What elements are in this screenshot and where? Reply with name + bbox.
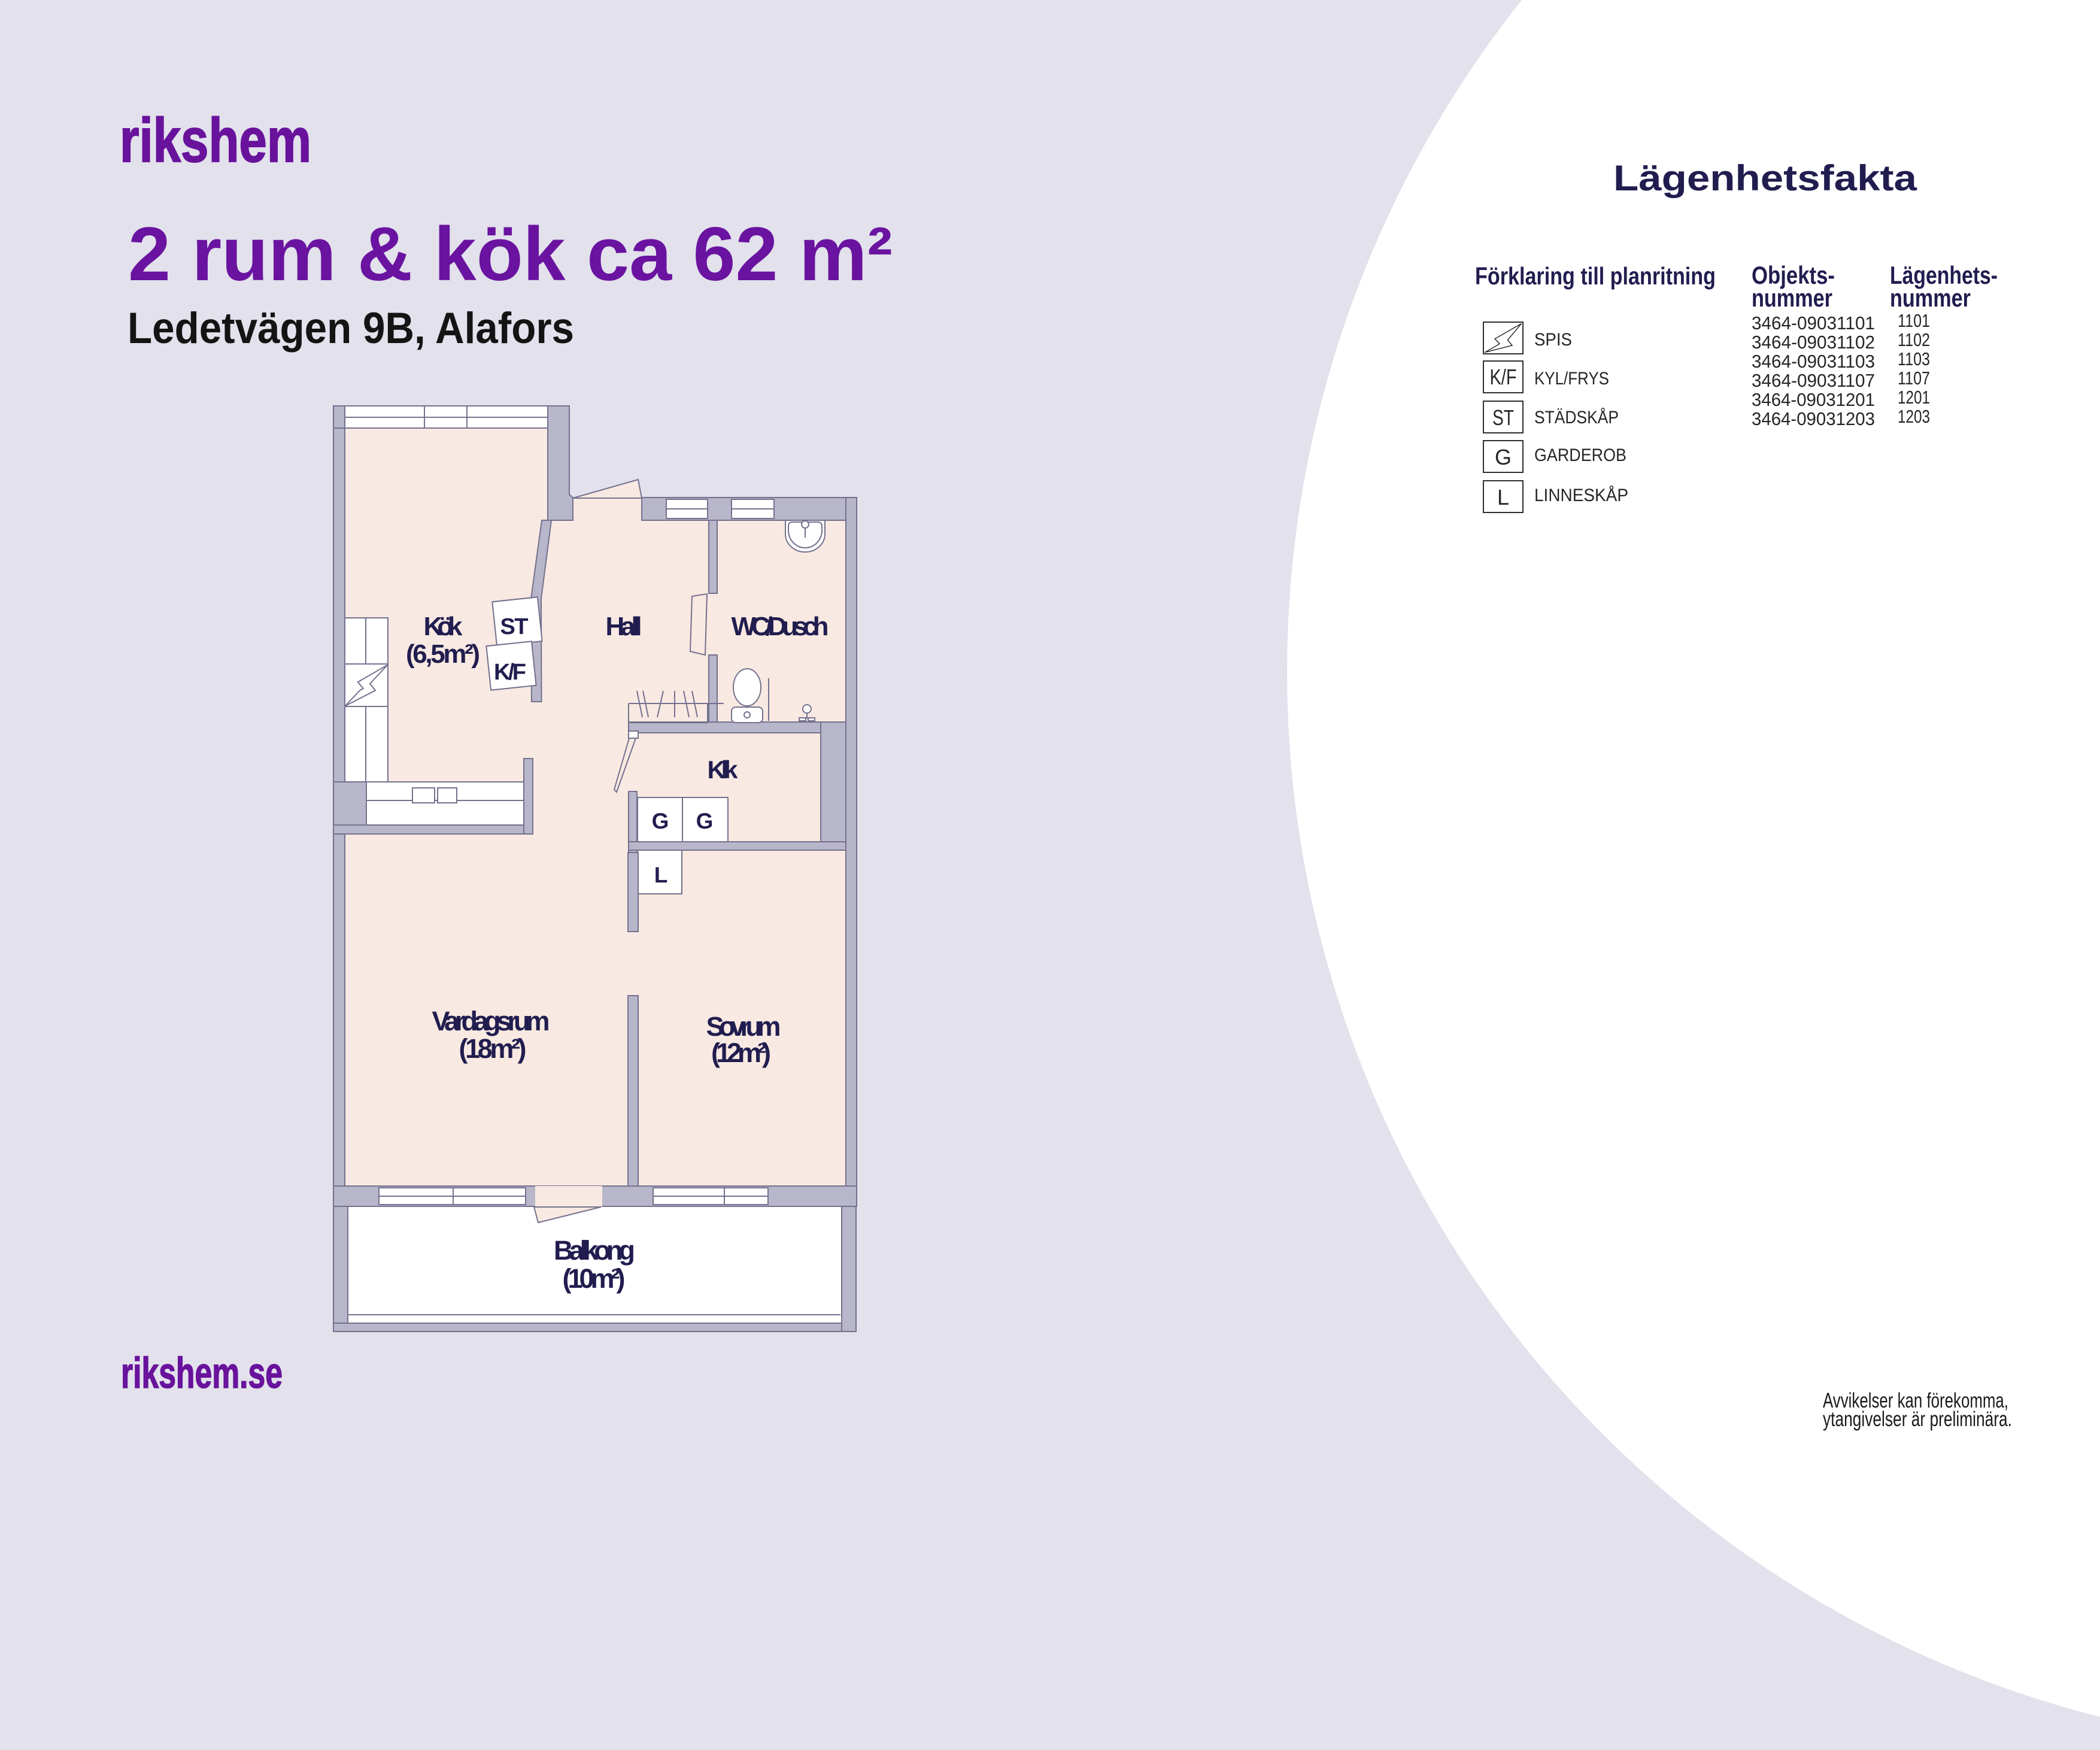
svg-text:1101: 1101 — [1898, 310, 1930, 331]
svg-text:1201: 1201 — [1898, 387, 1930, 408]
svg-text:3464-09031101: 3464-09031101 — [1752, 313, 1875, 333]
svg-text:L: L — [1497, 485, 1509, 509]
svg-text:ytangivelser är preliminära.: ytangivelser är preliminära. — [1823, 1408, 2012, 1431]
svg-text:1102: 1102 — [1898, 329, 1930, 350]
svg-text:K/F: K/F — [1490, 365, 1517, 389]
svg-text:STÄDSKÅP: STÄDSKÅP — [1534, 408, 1619, 427]
svg-text:SPIS: SPIS — [1534, 330, 1572, 350]
svg-text:GARDEROB: GARDEROB — [1534, 445, 1626, 465]
svg-text:LINNESKÅP: LINNESKÅP — [1534, 486, 1628, 505]
svg-text:3464-09031201: 3464-09031201 — [1752, 389, 1875, 410]
svg-text:Förklaring till planritning: Förklaring till planritning — [1475, 262, 1716, 290]
svg-text:KYL/FRYS: KYL/FRYS — [1534, 369, 1609, 389]
svg-text:1103: 1103 — [1898, 348, 1930, 369]
svg-text:nummer: nummer — [1752, 284, 1832, 312]
svg-text:1107: 1107 — [1898, 368, 1930, 389]
svg-text:Lägenhetsfakta: Lägenhetsfakta — [1613, 158, 1917, 198]
svg-text:G: G — [1495, 445, 1512, 469]
svg-text:ST: ST — [1492, 405, 1514, 430]
svg-text:1203: 1203 — [1898, 406, 1930, 427]
svg-text:3464-09031102: 3464-09031102 — [1752, 332, 1875, 353]
svg-text:3464-09031103: 3464-09031103 — [1752, 351, 1875, 372]
svg-text:nummer: nummer — [1890, 284, 1971, 312]
svg-text:3464-09031203: 3464-09031203 — [1752, 408, 1875, 429]
svg-text:3464-09031107: 3464-09031107 — [1752, 370, 1875, 391]
